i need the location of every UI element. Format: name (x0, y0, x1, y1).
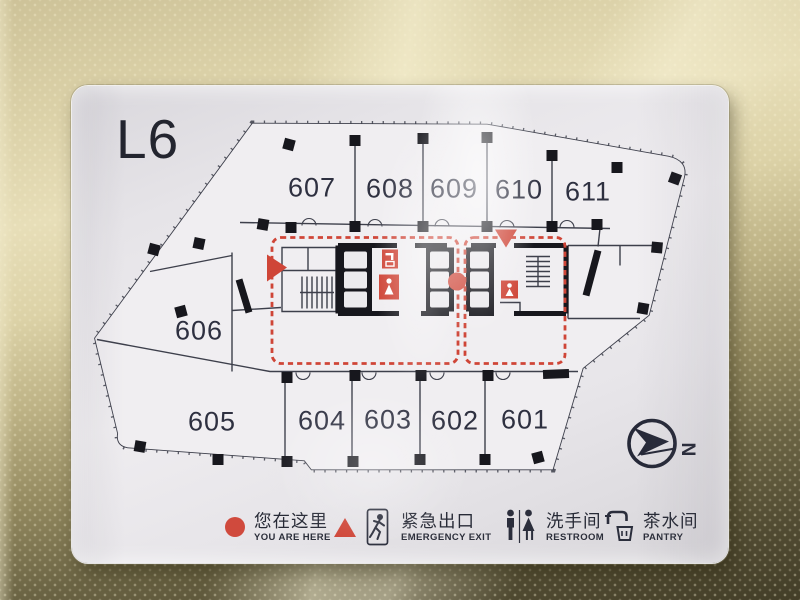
legend-en-restroom: RESTROOM (546, 532, 604, 543)
floor-plan: 607 608 609 610 611 606 605 604 603 602 … (72, 86, 728, 563)
legend-zh-emergency-exit: 紧急出口 (401, 511, 491, 531)
legend-item-you-are-here: 您在这里 YOU ARE HERE (225, 504, 331, 550)
room-label-604: 604 (298, 406, 346, 436)
legend-zh-restroom: 洗手间 (546, 511, 604, 531)
running-man-exit-icon (365, 507, 392, 547)
you-are-here-dot-icon (225, 517, 245, 537)
room-label-610: 610 (495, 175, 543, 205)
legend-item-restroom: 洗手间 RESTROOM (502, 504, 604, 550)
room-label-605: 605 (188, 407, 236, 437)
service-door (543, 369, 569, 379)
legend-item-pantry: 茶水间 PANTRY (603, 504, 699, 550)
room-label-603: 603 (364, 405, 412, 435)
compass-north-label: N (677, 443, 698, 457)
legend-en-emergency-exit: EMERGENCY EXIT (401, 532, 491, 543)
north-compass: N (629, 421, 698, 467)
room-label-606: 606 (175, 316, 223, 346)
floor-directory-sign-panel: L6 (72, 86, 728, 563)
room-label-607: 607 (288, 173, 336, 203)
room-label-602: 602 (431, 406, 479, 436)
room-label-601: 601 (501, 405, 549, 435)
legend-item-emergency-exit: 紧急出口 EMERGENCY EXIT (334, 504, 491, 550)
you-are-here-marker (448, 273, 466, 291)
room-label-611: 611 (565, 177, 611, 207)
legend-zh-pantry: 茶水间 (643, 511, 699, 531)
restroom-figures-icon (502, 507, 537, 547)
legend-en-you-are-here: YOU ARE HERE (254, 532, 331, 543)
faucet-cup-icon (603, 507, 634, 547)
legend-en-pantry: PANTRY (643, 532, 699, 543)
legend-zh-you-are-here: 您在这里 (254, 511, 331, 531)
emergency-exit-triangle-icon (334, 518, 356, 537)
room-label-608: 608 (366, 174, 414, 204)
room-label-609: 609 (430, 174, 478, 204)
